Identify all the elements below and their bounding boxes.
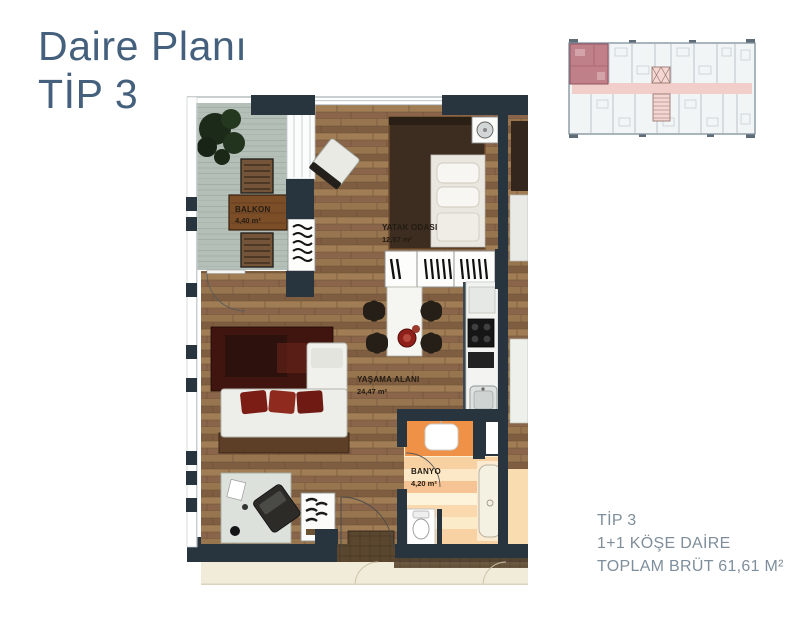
keyplan-highlight-unit (570, 44, 608, 84)
stove (468, 319, 494, 347)
floor-plan: BALKON 4,40 m² (185, 91, 528, 587)
balcony-chair (241, 159, 273, 193)
oven-drawer (468, 352, 494, 368)
dining-table (387, 287, 422, 356)
unit-info: TİP 3 1+1 KÖŞE DAİRE TOPLAM BRÜT 61,61 M… (597, 509, 784, 578)
room-label-yatak-odasi: YATAK ODASI (382, 223, 437, 232)
unit-gross-area: TOPLAM BRÜT 61,61 M² (597, 555, 784, 578)
room-area-yasama-alani: 24,47 m² (357, 387, 388, 396)
room-area-yatak-odasi: 12,57 m² (382, 235, 413, 244)
nightstand (472, 117, 498, 143)
room-label-yasama-alani: YAŞAMA ALANI (357, 375, 419, 384)
brochure-page: Daire Planı TİP 3 (0, 0, 800, 619)
balcony-chair (241, 233, 273, 267)
room-area-balkon: 4,40 m² (235, 216, 261, 225)
toilet (407, 509, 435, 545)
desk (221, 473, 302, 543)
bathroom-sink (425, 424, 458, 450)
page-title-line1: Daire Planı (38, 22, 247, 70)
unit-layout: 1+1 KÖŞE DAİRE (597, 532, 784, 555)
room-area-banyo: 4,20 m² (411, 479, 437, 488)
unit-type: TİP 3 (597, 509, 784, 532)
corridor (201, 558, 528, 585)
kitchen (463, 282, 498, 417)
hanger-cabinet (288, 219, 315, 271)
room-label-banyo: BANYO (411, 467, 441, 476)
neighbor-unit (508, 105, 528, 549)
vanity (405, 419, 475, 456)
keyplan-stairs (653, 94, 670, 121)
floor-key-plan (567, 36, 757, 141)
bathroom: BANYO 4,20 m² (404, 417, 505, 546)
facade (186, 97, 198, 547)
keyplan-elevator-core (652, 67, 670, 83)
keyplan-corridor (572, 83, 752, 94)
room-label-balkon: BALKON (235, 205, 270, 214)
